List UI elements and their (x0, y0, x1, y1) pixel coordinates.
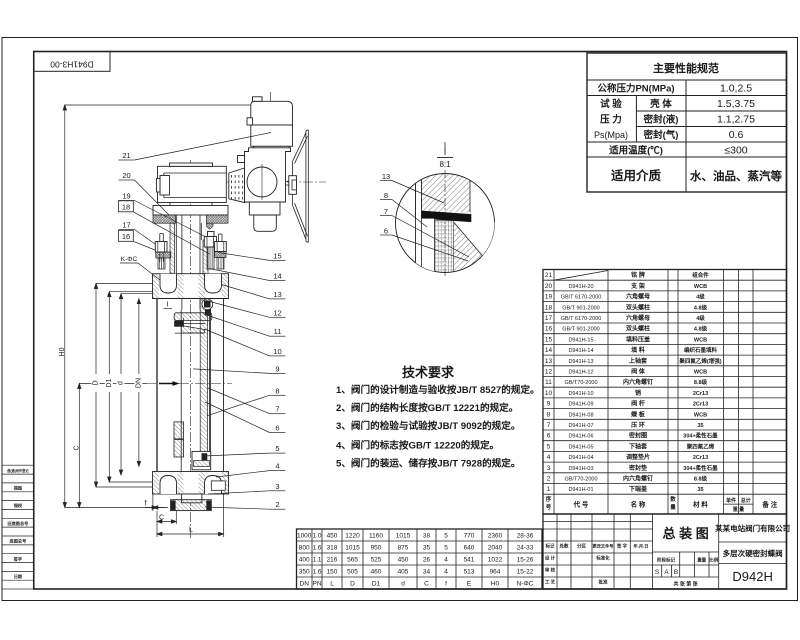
svg-text:20: 20 (122, 171, 130, 180)
svg-text:上轴套: 上轴套 (629, 357, 647, 365)
svg-text:Ps(Mpa): Ps(Mpa) (594, 130, 628, 140)
svg-text:适用介质: 适用介质 (611, 168, 662, 183)
svg-text:密封(液): 密封(液) (643, 114, 679, 126)
svg-text:9: 9 (547, 401, 551, 408)
svg-text:1.1: 1.1 (312, 557, 321, 564)
svg-text:1.5,3.75: 1.5,3.75 (717, 98, 755, 110)
svg-text:六角螺母: 六角螺母 (626, 314, 650, 322)
svg-text:A: A (664, 569, 669, 576)
svg-text:1.6: 1.6 (312, 545, 321, 552)
svg-text:重 量: 重 量 (733, 506, 744, 513)
svg-text:16: 16 (545, 326, 553, 333)
svg-text:压 环: 压 环 (631, 421, 645, 429)
svg-text:更改文件号: 更改文件号 (593, 543, 614, 550)
svg-text:4: 4 (547, 454, 551, 461)
svg-text:GB/T 901-2000: GB/T 901-2000 (562, 327, 600, 333)
svg-text:GB/T 901-2000: GB/T 901-2000 (562, 305, 600, 311)
svg-text:序: 序 (545, 495, 552, 503)
svg-text:11: 11 (274, 327, 282, 336)
svg-text:D941H-15: D941H-15 (568, 337, 593, 343)
svg-text:D941H-09: D941H-09 (568, 402, 593, 408)
svg-text:304+柔性石墨: 304+柔性石墨 (683, 432, 718, 440)
svg-text:1.1,2.75: 1.1,2.75 (717, 114, 755, 126)
svg-text:N-ΦC: N-ΦC (517, 581, 534, 588)
svg-text:8: 8 (547, 411, 551, 418)
svg-text:B: B (674, 569, 678, 576)
svg-text:4.8级: 4.8级 (694, 325, 708, 333)
svg-text:35: 35 (697, 487, 703, 493)
svg-text:E: E (467, 581, 472, 588)
svg-text:14: 14 (545, 347, 553, 354)
svg-text:适用温度(℃): 适用温度(℃) (609, 145, 663, 157)
svg-text:4级: 4级 (696, 293, 705, 301)
svg-text:770: 770 (464, 533, 475, 540)
svg-text:15: 15 (545, 336, 553, 343)
svg-text:2、阀门的结构长度按GB/T 12221的规定。: 2、阀门的结构长度按GB/T 12221的规定。 (336, 402, 518, 414)
svg-text:4、阀门的标志按GB/T 12220的规定。: 4、阀门的标志按GB/T 12220的规定。 (336, 440, 499, 452)
svg-text:6: 6 (384, 227, 388, 236)
svg-text:年.月.日: 年.月.日 (634, 543, 649, 550)
svg-text:D1: D1 (372, 581, 381, 588)
svg-text:底图总号: 底图总号 (10, 538, 27, 545)
svg-text:7: 7 (547, 422, 551, 429)
svg-text:4: 4 (444, 557, 448, 564)
svg-text:8:1: 8:1 (439, 160, 451, 169)
svg-text:318: 318 (327, 545, 338, 552)
svg-text:8: 8 (275, 386, 279, 395)
svg-text:GB/T 6170-2000: GB/T 6170-2000 (561, 295, 602, 301)
svg-text:1: 1 (547, 486, 551, 493)
svg-text:D941H-10: D941H-10 (568, 391, 593, 397)
svg-text:38: 38 (423, 533, 431, 540)
svg-text:28-36: 28-36 (517, 533, 534, 540)
svg-text:1000: 1000 (297, 533, 312, 540)
svg-text:19: 19 (122, 192, 130, 201)
svg-text:WCB: WCB (694, 284, 707, 290)
svg-text:C: C (159, 515, 164, 522)
svg-text:L: L (189, 527, 193, 534)
svg-text:D942H: D942H (732, 569, 772, 584)
svg-text:分区: 分区 (577, 543, 586, 550)
svg-text:0.6: 0.6 (729, 129, 744, 141)
svg-text:4: 4 (444, 569, 448, 576)
svg-text:材 料: 材 料 (692, 500, 708, 509)
svg-text:10: 10 (545, 390, 553, 397)
svg-text:12: 12 (545, 369, 553, 376)
svg-text:密封垫: 密封垫 (629, 464, 647, 472)
svg-text:调整垫片: 调整垫片 (626, 453, 650, 461)
svg-text:GB/T70-2000: GB/T70-2000 (564, 477, 597, 483)
svg-text:450: 450 (398, 557, 409, 564)
svg-text:21: 21 (545, 272, 553, 279)
svg-text:150: 150 (327, 569, 338, 576)
svg-text:7: 7 (275, 405, 279, 414)
svg-text:950: 950 (371, 545, 382, 552)
svg-text:f: f (445, 581, 447, 588)
svg-text:双头螺柱: 双头螺柱 (626, 303, 650, 311)
svg-text:总计: 总计 (741, 497, 751, 504)
svg-text:26: 26 (423, 557, 431, 564)
svg-text:壳 体: 壳 体 (649, 98, 672, 110)
svg-text:量: 量 (670, 503, 676, 511)
svg-text:5: 5 (547, 443, 551, 450)
svg-text:13: 13 (545, 358, 553, 365)
svg-text:1015: 1015 (396, 533, 411, 540)
svg-text:签 字: 签 字 (616, 543, 628, 550)
svg-text:压 力: 压 力 (600, 114, 622, 126)
svg-text:描校: 描校 (14, 502, 23, 509)
svg-text:6: 6 (547, 433, 551, 440)
svg-text:8.8级: 8.8级 (694, 378, 708, 386)
svg-text:2: 2 (547, 476, 551, 483)
svg-text:双头螺柱: 双头螺柱 (626, 325, 650, 333)
svg-text:17: 17 (545, 315, 553, 322)
svg-text:D: D (93, 380, 100, 385)
svg-text:S: S (655, 569, 660, 576)
svg-text:某某电站阀门有限公司: 某某电站阀门有限公司 (715, 523, 790, 533)
svg-text:数: 数 (670, 495, 676, 503)
svg-text:34: 34 (423, 569, 431, 576)
svg-text:505: 505 (347, 569, 358, 576)
svg-text:设 计: 设 计 (545, 555, 556, 562)
svg-text:标准化: 标准化 (595, 555, 610, 562)
svg-text:阀 杆: 阀 杆 (631, 400, 645, 408)
svg-text:4.8级: 4.8级 (694, 303, 708, 311)
svg-text:D941H3-00: D941H3-00 (50, 59, 94, 69)
svg-text:7: 7 (384, 207, 388, 216)
svg-text:2Cr13: 2Cr13 (693, 391, 708, 397)
svg-text:1.0: 1.0 (312, 533, 321, 540)
svg-text:21: 21 (122, 151, 130, 160)
svg-text:1.6: 1.6 (312, 569, 321, 576)
svg-text:比例: 比例 (709, 557, 718, 564)
svg-text:D941H-13: D941H-13 (568, 359, 593, 365)
svg-text:下轴套: 下轴套 (629, 442, 647, 450)
svg-text:13: 13 (382, 172, 390, 181)
svg-text:编织石墨填料: 编织石墨填料 (684, 346, 718, 354)
svg-text:10: 10 (273, 347, 281, 356)
svg-text:400: 400 (299, 557, 310, 564)
svg-text:D941H-01: D941H-01 (568, 487, 593, 493)
svg-text:WCB: WCB (694, 370, 707, 376)
svg-text:D941H-03: D941H-03 (568, 466, 593, 472)
svg-text:405: 405 (398, 569, 409, 576)
svg-text:标记: 标记 (545, 543, 555, 550)
svg-text:PN: PN (312, 581, 321, 588)
svg-text:9: 9 (275, 364, 279, 373)
svg-text:800: 800 (299, 545, 310, 552)
svg-text:1160: 1160 (369, 533, 383, 540)
svg-text:D: D (350, 581, 355, 588)
svg-text:d: d (118, 381, 125, 385)
svg-text:D941H-12: D941H-12 (568, 370, 593, 376)
svg-text:17: 17 (122, 221, 130, 230)
svg-text:304+柔性石墨: 304+柔性石墨 (683, 464, 718, 472)
svg-text:批准: 批准 (599, 579, 608, 586)
svg-text:签字: 签字 (13, 555, 22, 562)
svg-text:下端盖: 下端盖 (629, 485, 647, 493)
svg-text:1、阀门的设计制造与验收按JB/T 8527的规定。: 1、阀门的设计制造与验收按JB/T 8527的规定。 (336, 384, 540, 396)
svg-text:K-ΦC: K-ΦC (121, 256, 138, 263)
svg-text:重量: 重量 (697, 557, 706, 564)
svg-text:4级: 4级 (696, 314, 705, 322)
svg-text:处数: 处数 (559, 543, 569, 550)
svg-text:WCB: WCB (694, 337, 707, 343)
svg-text:640: 640 (464, 545, 475, 552)
svg-text:3: 3 (275, 482, 279, 491)
svg-text:I: I (167, 300, 169, 309)
svg-text:聚四氟乙烯: 聚四氟乙烯 (686, 442, 715, 450)
svg-text:旧底图总号: 旧底图总号 (7, 520, 28, 527)
svg-text:D941H-05: D941H-05 (568, 444, 593, 450)
svg-text:15: 15 (273, 251, 281, 260)
svg-text:18: 18 (122, 202, 130, 211)
svg-text:13: 13 (273, 290, 281, 299)
svg-text:541: 541 (464, 557, 475, 564)
svg-text:525: 525 (371, 557, 382, 564)
svg-text:6: 6 (275, 424, 279, 433)
svg-text:公称压力PN(MPa): 公称压力PN(MPa) (597, 83, 674, 95)
svg-text:销: 销 (635, 389, 641, 397)
svg-text:单件: 单件 (726, 497, 736, 504)
svg-text:216: 216 (327, 557, 338, 564)
svg-text:2360: 2360 (488, 533, 503, 540)
svg-text:5: 5 (275, 444, 279, 453)
svg-text:565: 565 (347, 557, 358, 564)
svg-text:D941H-08: D941H-08 (568, 412, 593, 418)
svg-text:H0: H0 (491, 581, 500, 588)
svg-text:多层次硬密封蝶阀: 多层次硬密封蝶阀 (723, 548, 783, 558)
svg-text:5: 5 (444, 533, 448, 540)
svg-text:d: d (401, 581, 405, 588)
svg-text:3: 3 (547, 465, 551, 472)
svg-text:≤300: ≤300 (724, 145, 747, 157)
svg-text:1015: 1015 (345, 545, 360, 552)
svg-text:备 注: 备 注 (761, 500, 777, 509)
svg-text:1220: 1220 (345, 533, 360, 540)
svg-text:铭 牌: 铭 牌 (631, 271, 645, 279)
svg-text:DN: DN (300, 581, 310, 588)
svg-text:1022: 1022 (488, 557, 503, 564)
svg-text:聚四氟乙烯(增强): 聚四氟乙烯(增强) (678, 357, 721, 365)
svg-text:350: 350 (299, 569, 310, 576)
svg-text:D941H-06: D941H-06 (568, 434, 593, 440)
svg-text:3、阀门的检验与试验按JB/T 9092的规定。: 3、阀门的检验与试验按JB/T 9092的规定。 (336, 420, 520, 432)
svg-text:水、油品、蒸汽等: 水、油品、蒸汽等 (690, 169, 782, 183)
svg-text:8.8级: 8.8级 (694, 475, 708, 483)
svg-text:19: 19 (545, 294, 553, 301)
svg-text:GB/T 6170-2000: GB/T 6170-2000 (561, 316, 602, 322)
svg-text:5: 5 (444, 545, 448, 552)
svg-text:2Cr13: 2Cr13 (693, 402, 708, 408)
svg-text:15-26: 15-26 (517, 557, 534, 564)
svg-text:460: 460 (371, 569, 382, 576)
svg-text:D941H-07: D941H-07 (568, 423, 593, 429)
svg-text:D941H-14: D941H-14 (568, 348, 593, 354)
svg-text:描图: 描图 (14, 485, 22, 492)
svg-text:2Cr13: 2Cr13 (693, 455, 708, 461)
svg-text:内六角螺钉: 内六角螺钉 (623, 475, 653, 483)
svg-text:号: 号 (546, 503, 552, 511)
svg-text:1.0,2.5: 1.0,2.5 (720, 83, 752, 95)
svg-text:阶段标记: 阶段标记 (657, 557, 675, 564)
svg-text:名 称: 名 称 (631, 500, 646, 509)
svg-text:H0: H0 (59, 347, 66, 356)
svg-text:18: 18 (545, 304, 553, 311)
svg-text:主要性能规范: 主要性能规范 (653, 61, 719, 75)
svg-text:日期: 日期 (14, 573, 22, 580)
svg-text:11: 11 (545, 379, 552, 386)
svg-text:24-33: 24-33 (517, 545, 534, 552)
svg-text:试 验: 试 验 (600, 98, 622, 110)
svg-text:蝶 板: 蝶 板 (631, 410, 646, 418)
svg-text:审 核: 审 核 (545, 567, 556, 574)
svg-text:L: L (330, 581, 334, 588)
svg-text:8: 8 (384, 191, 388, 200)
svg-text:填 料: 填 料 (631, 346, 645, 354)
svg-text:2040: 2040 (488, 545, 503, 552)
svg-text:f: f (145, 501, 147, 508)
svg-text:技术要求: 技术要求 (402, 365, 455, 380)
svg-text:内六角螺钉: 内六角螺钉 (623, 378, 653, 386)
svg-text:六角螺母: 六角螺母 (626, 293, 650, 301)
svg-text:GB/T70-2000: GB/T70-2000 (564, 380, 597, 386)
svg-text:2: 2 (275, 500, 279, 509)
svg-text:4: 4 (275, 462, 279, 471)
svg-text:964: 964 (490, 569, 501, 576)
svg-text:35: 35 (697, 423, 703, 429)
svg-text:借(通)用件登记: 借(通)用件登记 (6, 468, 29, 473)
svg-text:875: 875 (398, 545, 409, 552)
svg-text:D941H-20: D941H-20 (568, 284, 593, 290)
svg-text:总 装 图: 总 装 图 (662, 526, 708, 541)
svg-text:工 艺: 工 艺 (545, 579, 556, 586)
svg-text:密封(气): 密封(气) (643, 129, 679, 141)
svg-text:14: 14 (273, 272, 281, 281)
svg-text:共 张 第 张: 共 张 第 张 (674, 581, 699, 588)
svg-text:16: 16 (122, 232, 130, 241)
svg-text:513: 513 (464, 569, 475, 576)
svg-text:组合件: 组合件 (692, 271, 709, 279)
svg-text:15-22: 15-22 (517, 569, 534, 576)
svg-text:35: 35 (423, 545, 431, 552)
svg-text:D941H-04: D941H-04 (568, 455, 593, 461)
svg-text:C: C (424, 581, 429, 588)
svg-text:20: 20 (545, 283, 553, 290)
svg-text:450: 450 (327, 533, 338, 540)
svg-text:DN: DN (135, 378, 142, 388)
svg-text:阀 体: 阀 体 (631, 368, 646, 376)
svg-text:12: 12 (273, 308, 281, 317)
svg-text:支 架: 支 架 (630, 282, 645, 290)
svg-text:WCB: WCB (694, 412, 707, 418)
svg-text:D1: D1 (106, 378, 113, 387)
svg-text:C: C (73, 445, 80, 450)
svg-text:填料压盖: 填料压盖 (626, 335, 650, 343)
svg-text:5、阀门的装运、储存按JB/T 7928的规定。: 5、阀门的装运、储存按JB/T 7928的规定。 (336, 458, 520, 470)
svg-text:代 号: 代 号 (573, 500, 589, 509)
svg-text:密封圈: 密封圈 (629, 432, 647, 440)
